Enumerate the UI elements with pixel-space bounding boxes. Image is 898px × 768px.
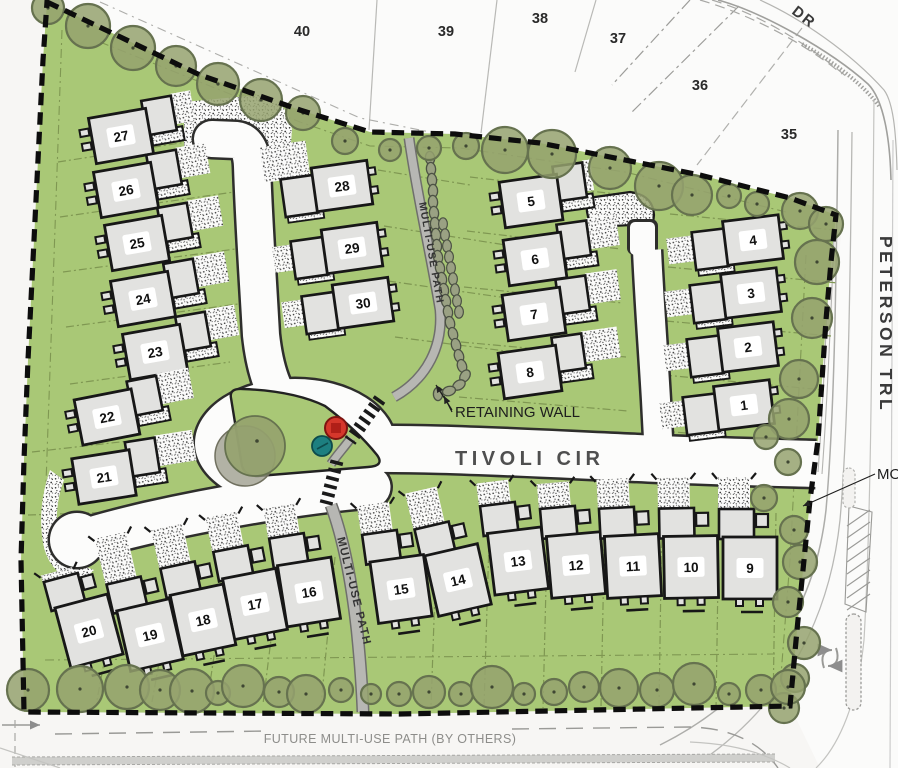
svg-text:22: 22 [98,409,116,427]
svg-text:36: 36 [692,78,708,94]
svg-text:37: 37 [610,31,626,47]
svg-text:MON: MON [877,466,898,483]
svg-text:40: 40 [294,24,310,40]
svg-text:29: 29 [344,240,361,257]
svg-text:39: 39 [438,24,454,40]
svg-text:16: 16 [300,584,318,601]
svg-text:27: 27 [112,128,129,145]
svg-text:FUTURE MULTI-USE PATH (BY OTHE: FUTURE MULTI-USE PATH (BY OTHERS) [264,732,517,746]
svg-text:PETERSON TRL: PETERSON TRL [876,236,896,413]
svg-text:17: 17 [246,596,264,614]
svg-text:12: 12 [568,557,584,573]
svg-text:23: 23 [146,344,164,361]
svg-text:26: 26 [117,182,135,199]
svg-text:TIVOLI CIR: TIVOLI CIR [455,448,604,470]
svg-text:30: 30 [355,295,372,312]
svg-text:15: 15 [393,581,410,598]
svg-text:10: 10 [683,560,698,575]
svg-text:35: 35 [781,127,797,143]
svg-text:28: 28 [334,178,351,195]
svg-text:25: 25 [128,235,146,252]
svg-text:38: 38 [532,11,548,27]
svg-text:11: 11 [626,559,642,575]
svg-text:21: 21 [95,469,113,486]
svg-text:RETAINING WALL: RETAINING WALL [455,404,580,421]
svg-text:24: 24 [134,291,152,308]
svg-text:13: 13 [510,553,527,570]
svg-text:9: 9 [746,561,754,576]
